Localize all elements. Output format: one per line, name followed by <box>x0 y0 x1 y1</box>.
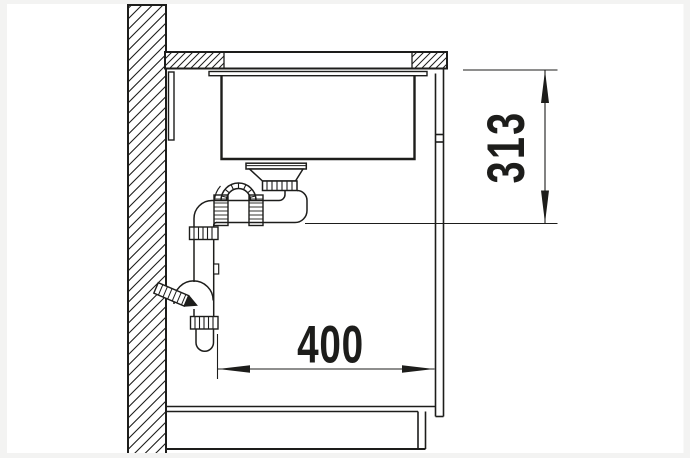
cabinet-floor <box>166 407 436 412</box>
dim-313-arrow-down <box>541 191 549 224</box>
sink <box>169 72 428 160</box>
cabinet-plinth <box>418 412 426 450</box>
strainer <box>246 163 306 190</box>
drain-trap-assembly <box>153 163 307 351</box>
sink-flange <box>209 72 427 76</box>
cabinet-front-panel <box>436 69 444 417</box>
cabinet <box>166 69 444 449</box>
countertop-hatch-right <box>412 53 447 68</box>
mounting-batten <box>169 72 175 140</box>
dim-400-label: 400 <box>297 315 364 374</box>
strainer-outlet-elbow <box>279 191 307 223</box>
dim-313-label: 313 <box>476 110 535 183</box>
countertop <box>165 52 447 69</box>
pipe-clip <box>214 264 219 274</box>
countertop-hatch-left <box>166 53 224 68</box>
trap-bottom-cap <box>196 329 214 351</box>
vertical-pipe-coupling-lower <box>191 317 219 330</box>
technical-drawing-canvas: 313 400 <box>0 0 690 458</box>
dim-400-arrow-right <box>402 365 434 373</box>
vertical-pipe-coupling-upper <box>190 227 219 240</box>
down-elbow <box>194 201 217 228</box>
sink-section-drawing: 313 400 <box>0 0 690 458</box>
wall-section <box>128 5 166 458</box>
trap-arch <box>215 183 257 201</box>
dim-313-arrow-up <box>541 71 549 104</box>
sink-basin <box>222 76 415 159</box>
trap-vertical-pipe <box>194 240 219 317</box>
dim-400-arrow-left <box>218 365 250 373</box>
